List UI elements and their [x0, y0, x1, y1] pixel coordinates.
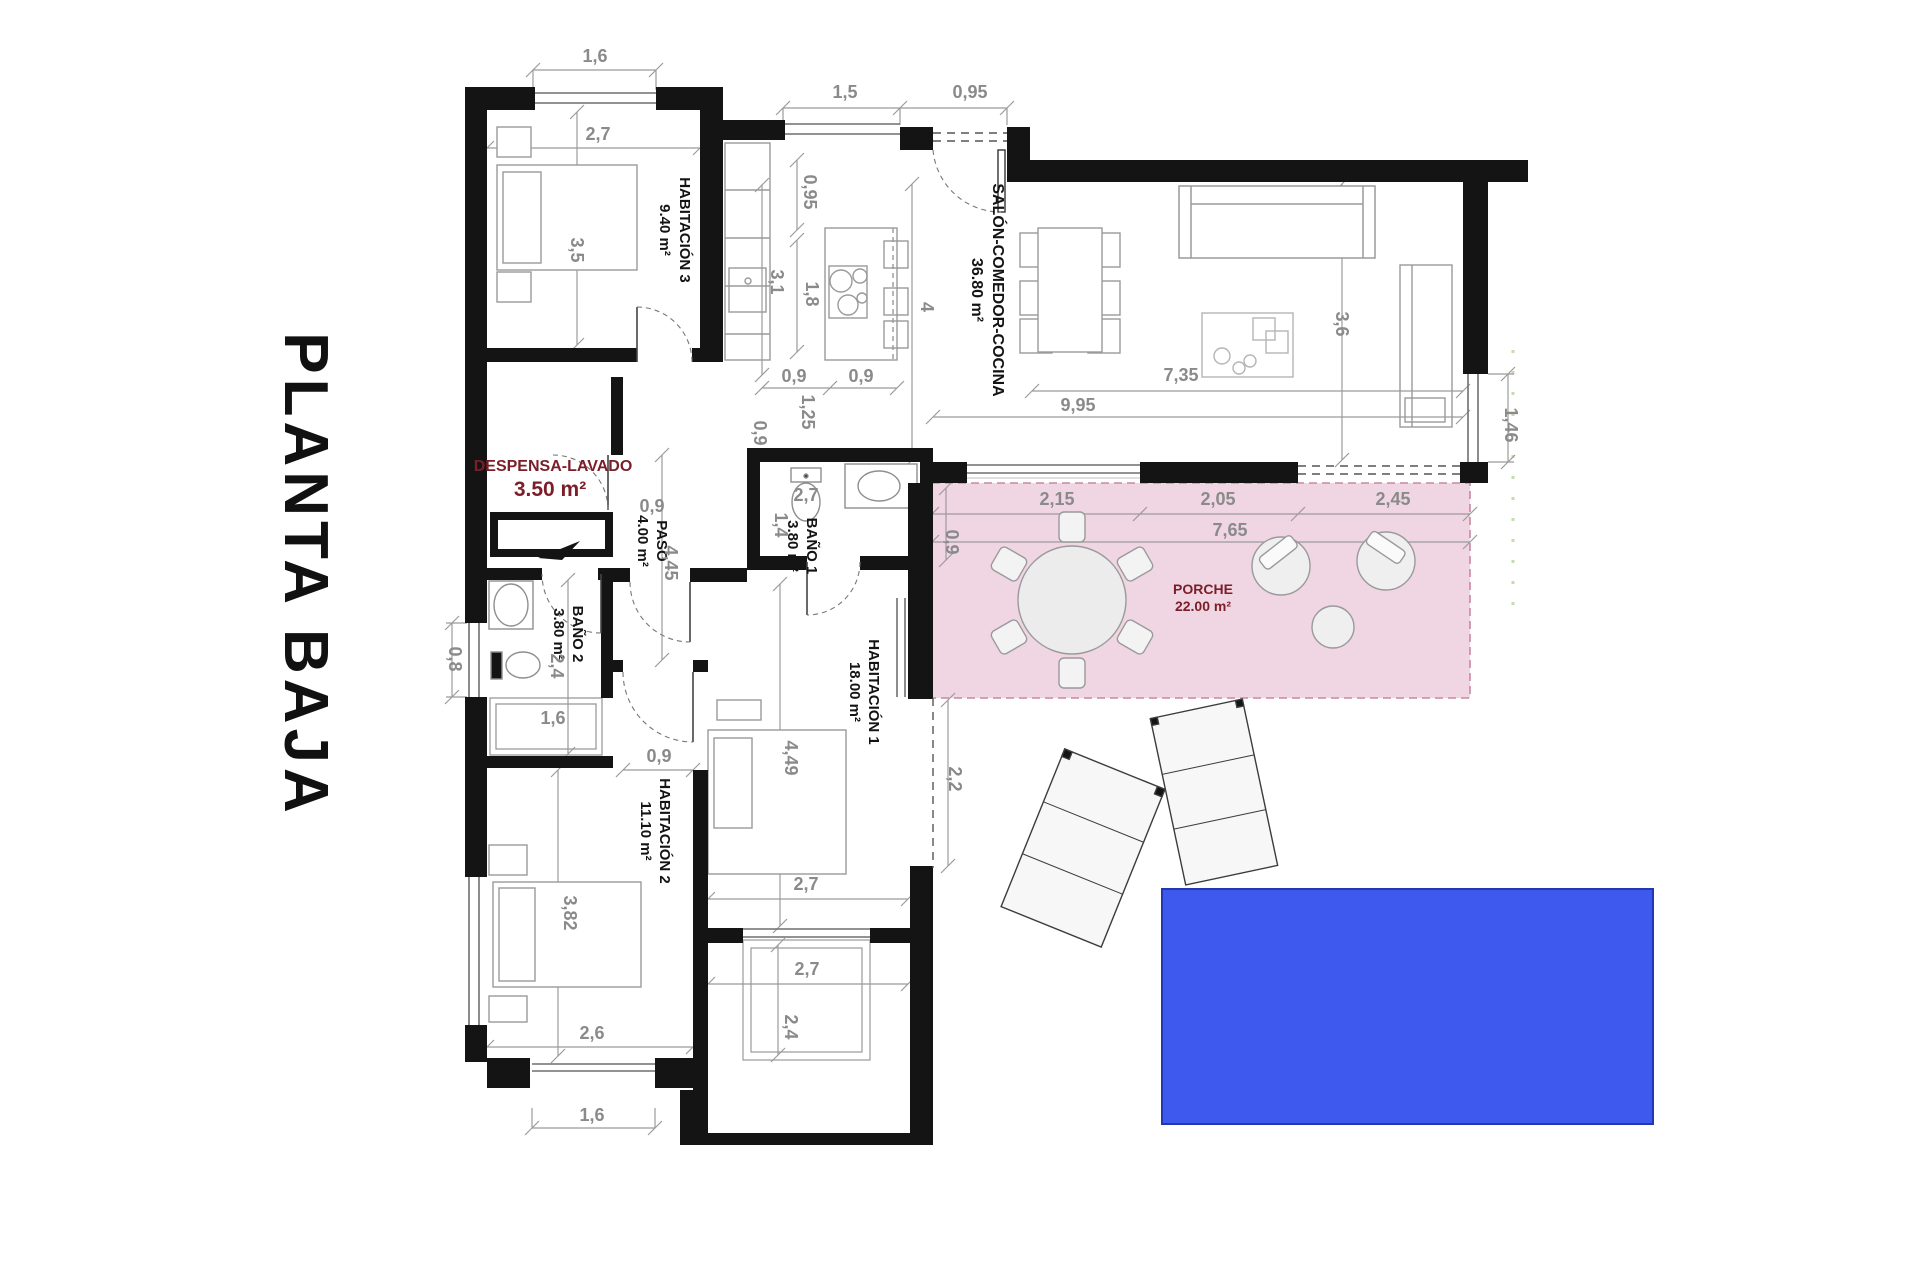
dimension-label: 1,25	[798, 394, 818, 429]
sofa	[1179, 186, 1375, 258]
dimension-label: 2,7	[585, 124, 610, 144]
room-area-salon: 36.80 m²	[968, 258, 985, 322]
dimension-label: 2,45	[1375, 489, 1410, 509]
dimension-label: 0,8	[445, 646, 465, 671]
dimension-label: 0,95	[800, 174, 820, 209]
room-area-hab2: 11.10 m²	[637, 801, 654, 860]
sun-lounger	[1150, 699, 1277, 885]
bed-hab3	[497, 127, 637, 302]
dimension-label: 0,9	[848, 366, 873, 386]
kitchen-island	[825, 228, 908, 360]
dimension-label: 3,1	[767, 269, 787, 294]
bathroom2-fixtures	[489, 581, 540, 679]
room-label-despensa: DESPENSA-LAVADO	[474, 458, 633, 475]
dimension-label: 1,5	[832, 82, 857, 102]
dimension-label: 2,7	[793, 874, 818, 894]
dimension-label: 2,7	[793, 485, 818, 505]
room-label-hab3: HABITACIÓN 3	[676, 177, 694, 283]
dimension-label: 1,4	[771, 512, 791, 537]
bed-hab1	[708, 700, 846, 874]
dimension-label: 2,6	[579, 1023, 604, 1043]
dimension-label: 1,8	[802, 281, 822, 306]
room-label-bano2: BAÑO 2	[569, 606, 587, 663]
room-label-bano1: BAÑO 1	[803, 518, 821, 575]
dimension-label: 3,6	[1332, 311, 1352, 336]
room-label-salon: SALÓN-COMEDOR-COCINA	[989, 183, 1008, 397]
room-area-despensa: 3.50 m²	[514, 478, 586, 501]
floor-plan-page: PLANTA BAJA HABITACIÓN 3 9.40 m² SALÓN-C…	[0, 0, 1920, 1280]
dimension-label: 0,9	[750, 420, 770, 445]
entry-step-block	[494, 516, 609, 560]
dimension-label: 3,5	[567, 237, 587, 262]
dimension-label: 4,45	[661, 545, 681, 580]
room-area-hab3: 9.40 m²	[656, 204, 673, 256]
dimension-label: 7,65	[1212, 520, 1247, 540]
room-area-hab1: 18.00 m²	[846, 662, 863, 722]
dimension-label: 2,2	[945, 766, 965, 791]
room-label-hab2: HABITACIÓN 2	[656, 778, 674, 884]
dimension-label: 0,9	[646, 746, 671, 766]
dimension-label: 0,9	[639, 496, 664, 516]
dimension-label: 2,7	[794, 959, 819, 979]
dimension-label: 2,4	[547, 653, 567, 678]
dimension-label: 9,95	[1060, 395, 1095, 415]
dimension-label: 0,9	[781, 366, 806, 386]
dimension-label: 1,6	[540, 708, 565, 728]
room-label-hab1: HABITACIÓN 1	[865, 639, 883, 745]
room-label-porche: PORCHE	[1173, 581, 1233, 597]
dimension-label: 3,82	[560, 895, 580, 930]
dimension-label: 1,46	[1501, 407, 1521, 442]
dimension-label: 2,05	[1200, 489, 1235, 509]
swimming-pool	[1162, 889, 1653, 1124]
dimension-label: 0,9	[942, 529, 962, 554]
room-area-bano2: 3.80 m²	[550, 608, 567, 660]
dimension-label: 1,6	[582, 46, 607, 66]
patio-planter	[743, 940, 870, 1060]
dimension-label: 7,35	[1163, 365, 1198, 385]
dining-set	[1020, 228, 1120, 353]
room-area-porche: 22.00 m²	[1175, 598, 1231, 614]
page-title: PLANTA BAJA	[271, 332, 340, 818]
dimension-label: 2,15	[1039, 489, 1074, 509]
room-area-paso: 4.00 m²	[634, 515, 651, 567]
dimension-label: 2,4	[781, 1014, 801, 1039]
bed-hab2	[489, 845, 641, 1022]
dimension-label: 4	[917, 302, 937, 312]
dimension-label: 4,49	[781, 740, 801, 775]
coffee-table	[1202, 313, 1293, 377]
kitchen-cabinets	[725, 143, 770, 360]
dimension-label: 1,6	[579, 1105, 604, 1125]
dimension-label: 0,95	[952, 82, 987, 102]
floor-plan-drawing: PLANTA BAJA HABITACIÓN 3 9.40 m² SALÓN-C…	[0, 0, 1920, 1280]
sun-lounger	[1001, 749, 1165, 947]
tv-unit	[1400, 265, 1452, 427]
